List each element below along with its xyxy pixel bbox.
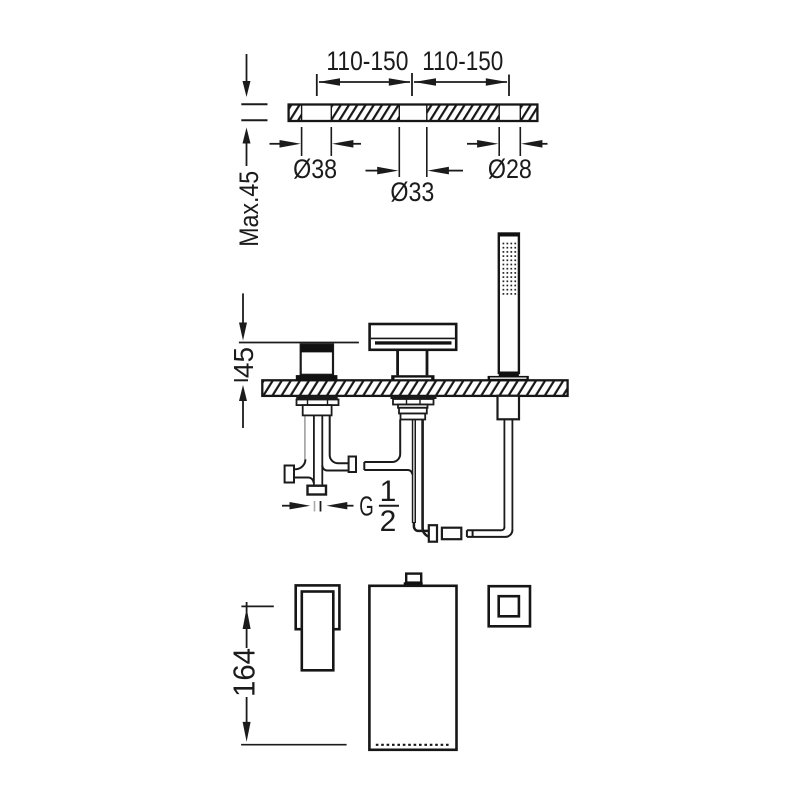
svg-text:Ø28: Ø28 — [488, 154, 532, 184]
svg-text:1: 1 — [380, 475, 397, 508]
svg-text:164: 164 — [226, 648, 261, 697]
svg-text:110-150: 110-150 — [422, 46, 503, 76]
svg-text:45: 45 — [228, 347, 259, 378]
svg-text:Ø33: Ø33 — [390, 177, 434, 207]
svg-text:G: G — [359, 491, 374, 522]
svg-text:Max.45: Max.45 — [234, 171, 264, 247]
svg-text:110-150: 110-150 — [326, 46, 408, 76]
svg-text:2: 2 — [380, 505, 397, 538]
svg-text:Ø38: Ø38 — [293, 154, 337, 184]
